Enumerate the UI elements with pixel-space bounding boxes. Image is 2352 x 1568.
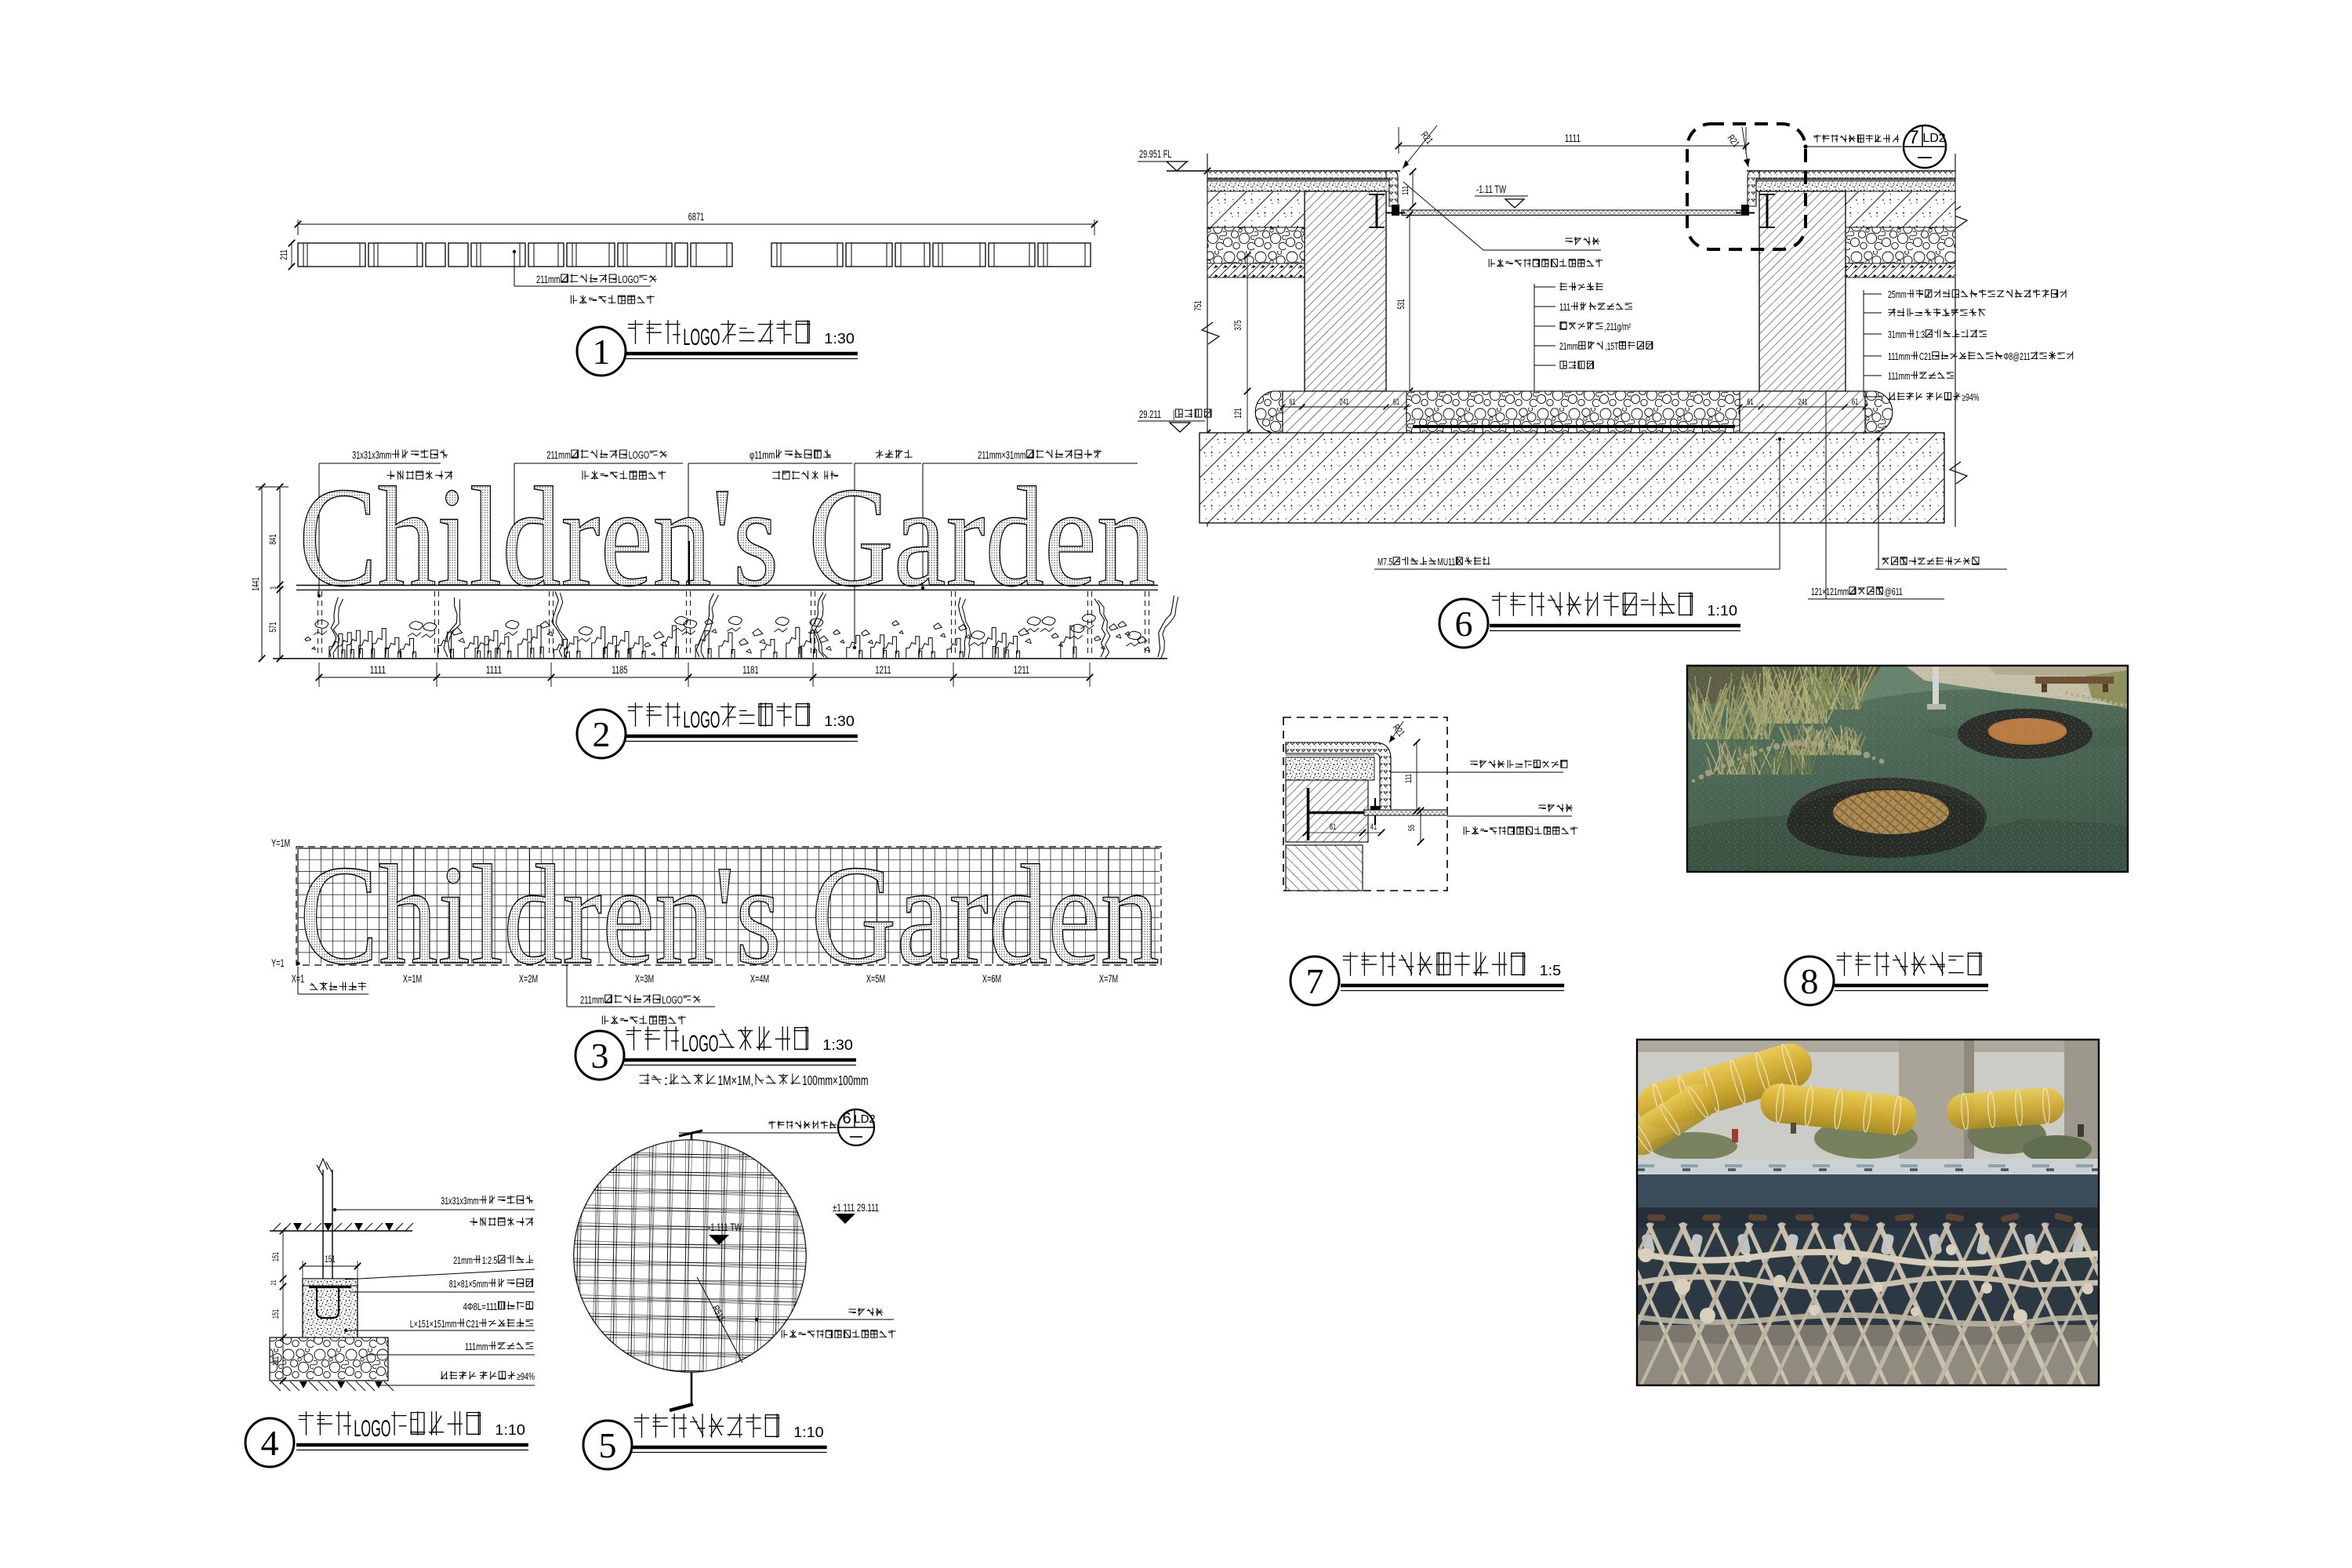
svg-text:29.951 FL: 29.951 FL — [1139, 148, 1172, 160]
svg-text:2: 2 — [593, 714, 611, 754]
svg-text:LOGO: LOGO — [618, 274, 639, 285]
svg-text:1:10: 1:10 — [793, 1425, 824, 1441]
svg-text:211mm: 211mm — [580, 994, 604, 1006]
svg-text:111: 111 — [271, 1356, 281, 1366]
svg-text:151: 151 — [325, 1254, 335, 1265]
svg-text:111mm: 111mm — [465, 1341, 488, 1352]
svg-text:375: 375 — [1233, 320, 1243, 331]
svg-text:|: | — [1173, 408, 1174, 420]
svg-text:25mm: 25mm — [1888, 289, 1907, 300]
svg-text:X=3M: X=3M — [635, 973, 654, 985]
svg-text:@611: @611 — [1885, 586, 1903, 597]
svg-text:1185: 1185 — [612, 664, 627, 676]
svg-text:1:5: 1:5 — [1540, 963, 1562, 979]
svg-text:81: 81 — [1330, 822, 1336, 832]
svg-text:531: 531 — [1396, 299, 1406, 309]
svg-text:1:30: 1:30 — [824, 331, 855, 347]
svg-text:21mm: 21mm — [453, 1254, 473, 1266]
svg-text:241: 241 — [1798, 397, 1807, 407]
svg-text:100mm×100mm: 100mm×100mm — [802, 1073, 868, 1088]
svg-text:±1.111 29.111: ±1.111 29.111 — [833, 1202, 879, 1214]
svg-text:1181: 1181 — [742, 664, 758, 676]
svg-text:LD2: LD2 — [854, 1112, 876, 1126]
svg-text:31mm: 31mm — [1888, 329, 1907, 340]
svg-text:C21: C21 — [1919, 351, 1932, 362]
svg-text:1:10: 1:10 — [495, 1422, 525, 1439]
svg-text:M7.5: M7.5 — [1377, 557, 1392, 568]
svg-text:571: 571 — [268, 622, 278, 632]
svg-text:6871: 6871 — [688, 211, 704, 223]
svg-text:LOGO: LOGO — [662, 994, 683, 1006]
svg-text:21mm: 21mm — [1559, 341, 1578, 352]
svg-text:1211: 1211 — [875, 664, 891, 676]
svg-text:5: 5 — [599, 1425, 617, 1465]
svg-text:C21: C21 — [466, 1318, 478, 1330]
svg-text:,15T: ,15T — [1605, 341, 1618, 352]
svg-text:151: 151 — [271, 1309, 281, 1319]
svg-text:,211g/m²: ,211g/m² — [1604, 321, 1631, 332]
svg-text:21: 21 — [270, 1280, 278, 1286]
svg-text:4Φ8L=111: 4Φ8L=111 — [463, 1301, 498, 1312]
svg-text:1441: 1441 — [251, 577, 261, 591]
svg-text:211mm: 211mm — [536, 274, 561, 285]
svg-text:1211: 1211 — [1014, 664, 1029, 676]
svg-text:111mm: 111mm — [1888, 351, 1911, 362]
svg-text:-1.11 TW: -1.11 TW — [1476, 183, 1506, 195]
svg-text:LOGO: LOGO — [683, 707, 720, 733]
svg-text:Φ8@211: Φ8@211 — [2004, 351, 2031, 362]
svg-text:7: 7 — [1306, 961, 1324, 1001]
svg-text:3: 3 — [591, 1036, 609, 1076]
svg-text:241: 241 — [1339, 397, 1348, 407]
svg-text:751: 751 — [1193, 300, 1203, 310]
svg-text:841: 841 — [268, 534, 278, 544]
svg-text:1:10: 1:10 — [1707, 603, 1737, 619]
svg-text:X=4M: X=4M — [750, 973, 769, 985]
svg-text:1: 1 — [593, 332, 611, 372]
svg-text:LD2: LD2 — [1922, 132, 1945, 145]
svg-text:41: 41 — [1370, 822, 1377, 832]
svg-text:1:30: 1:30 — [824, 713, 855, 730]
svg-text:1111: 1111 — [370, 664, 386, 676]
svg-text:111: 111 — [1559, 302, 1570, 313]
svg-text:151: 151 — [271, 1252, 281, 1261]
svg-text:X=5M: X=5M — [866, 973, 885, 985]
svg-text:61: 61 — [1393, 397, 1399, 407]
svg-text:1:3: 1:3 — [1915, 329, 1925, 340]
svg-text::: : — [663, 1073, 669, 1088]
svg-text:MU11: MU11 — [1437, 557, 1455, 568]
svg-text:≥94%: ≥94% — [517, 1370, 535, 1382]
svg-text:1M×1M,: 1M×1M, — [717, 1073, 753, 1088]
svg-text:111: 111 — [1404, 774, 1414, 783]
svg-text:X=2M: X=2M — [519, 973, 538, 985]
svg-text:1:2.5: 1:2.5 — [482, 1254, 498, 1266]
svg-text:1111: 1111 — [1565, 132, 1581, 144]
svg-text:1111: 1111 — [486, 664, 502, 676]
svg-text:X=1M: X=1M — [403, 973, 422, 985]
svg-text:≥94%: ≥94% — [1962, 392, 1979, 403]
svg-text:81×81×5mm: 81×81×5mm — [449, 1278, 488, 1290]
svg-text:X=7M: X=7M — [1099, 973, 1118, 985]
svg-text:X=6M: X=6M — [982, 973, 1001, 985]
svg-text:L×151×151mm: L×151×151mm — [410, 1318, 457, 1330]
svg-text:121: 121 — [1233, 408, 1243, 418]
svg-text:Children's Garden: Children's Garden — [299, 837, 1160, 994]
svg-text:55: 55 — [1407, 825, 1417, 831]
svg-text:6: 6 — [842, 1110, 851, 1127]
svg-text:7: 7 — [1908, 127, 1918, 148]
svg-text:211: 211 — [279, 249, 289, 260]
svg-text:111mm: 111mm — [1888, 371, 1911, 382]
svg-text:61: 61 — [1289, 397, 1295, 407]
svg-text:121×121mm: 121×121mm — [1811, 586, 1849, 597]
svg-text:LOGO: LOGO — [681, 1031, 718, 1057]
svg-text:Children's Garden: Children's Garden — [299, 459, 1156, 616]
svg-text:8: 8 — [1801, 961, 1819, 1001]
svg-text:LOGO: LOGO — [683, 325, 720, 350]
svg-text:Y=1M: Y=1M — [271, 837, 290, 849]
svg-text:Y=1: Y=1 — [271, 957, 285, 969]
svg-text:4: 4 — [261, 1423, 279, 1463]
svg-text:3: 3 — [270, 586, 278, 590]
svg-text:61: 61 — [1852, 397, 1858, 407]
svg-text:31x31x3mm: 31x31x3mm — [441, 1195, 478, 1207]
svg-text:LOGO: LOGO — [354, 1416, 390, 1442]
svg-text:6: 6 — [1455, 604, 1473, 644]
svg-text:61: 61 — [1747, 397, 1753, 407]
svg-text:-1.111 TW: -1.111 TW — [708, 1221, 742, 1233]
svg-text:1:30: 1:30 — [822, 1037, 853, 1054]
svg-text:29.211: 29.211 — [1139, 408, 1161, 420]
